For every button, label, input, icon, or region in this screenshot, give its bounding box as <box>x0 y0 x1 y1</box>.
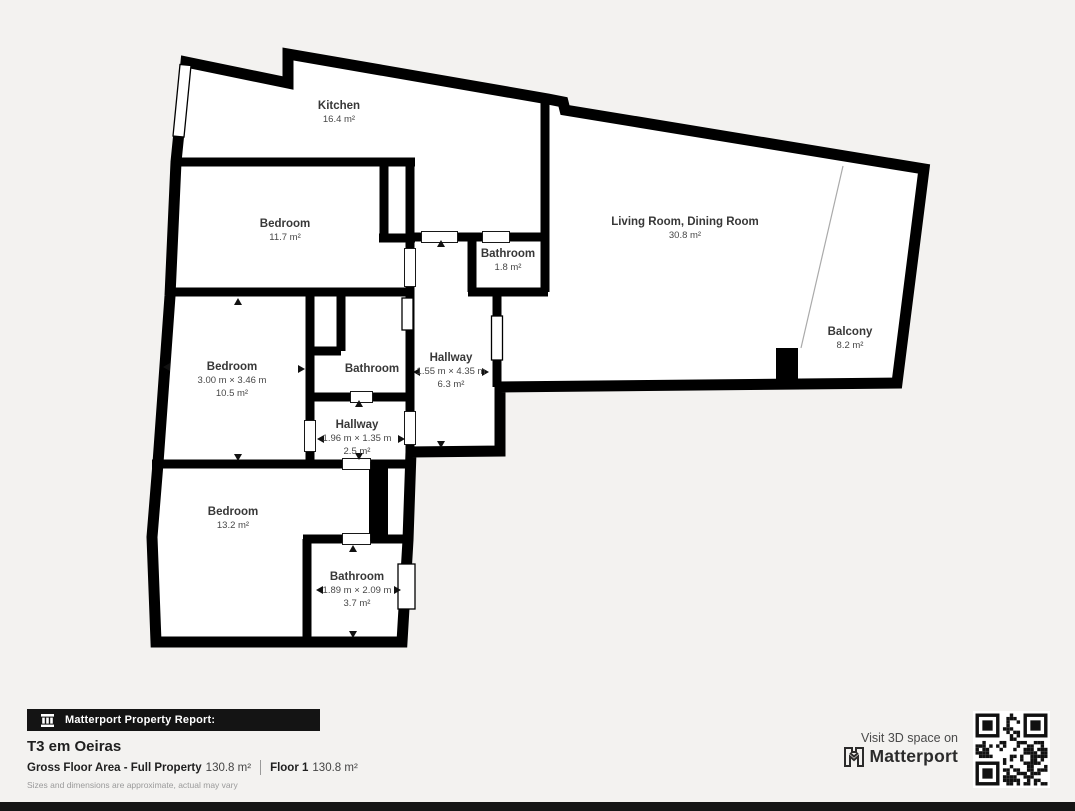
room-label-bathroom-small: Bathroom 1.8 m² <box>481 247 535 274</box>
matterport-wordmark: Matterport <box>869 746 958 767</box>
floor-plan-page: Kitchen 16.4 m² Bedroom 11.7 m² Living R… <box>0 0 1075 811</box>
qr-code <box>973 711 1050 788</box>
floor-value: 130.8 m² <box>312 762 357 774</box>
floor-plan <box>0 0 1075 811</box>
gross-area-label: Gross Floor Area - Full Property <box>27 762 202 774</box>
qr-pattern <box>973 711 1050 788</box>
disclaimer-text: Sizes and dimensions are approximate, ac… <box>27 780 238 790</box>
area-stats: Gross Floor Area - Full Property 130.8 m… <box>27 760 358 775</box>
room-label-hallway-main: Hallway 1.55 m × 4.35 m 6.3 m² <box>417 351 486 391</box>
door-bedroom-middle <box>305 421 316 452</box>
report-header-label: Matterport Property Report: <box>65 714 215 726</box>
matterport-logo-icon <box>844 747 864 767</box>
door-hallway-kitchen <box>422 232 458 243</box>
stats-divider <box>260 760 261 775</box>
gross-area-value: 130.8 m² <box>206 762 251 774</box>
matterport-brand: Matterport <box>844 746 958 767</box>
bottom-bar <box>0 802 1075 811</box>
room-label-balcony: Balcony 8.2 m² <box>828 325 873 352</box>
room-label-kitchen: Kitchen 16.4 m² <box>318 99 360 126</box>
floor-label: Floor 1 <box>270 762 308 774</box>
window-hallway <box>492 316 503 360</box>
room-label-bedroom-middle: Bedroom 3.00 m × 3.46 m 10.5 m² <box>198 360 267 400</box>
door-bathroom-small <box>483 232 510 243</box>
niche-bathroom-bottom <box>398 564 415 609</box>
room-label-bedroom-top: Bedroom 11.7 m² <box>260 217 310 244</box>
property-title: T3 em Oeiras <box>27 738 121 755</box>
door-bedroom-bottom <box>343 459 371 470</box>
floor-outline <box>152 54 924 642</box>
room-label-hallway-small: Hallway 1.96 m × 1.35 m 2.5 m² <box>323 418 392 458</box>
visit-3d-text: Visit 3D space on <box>861 731 958 745</box>
balcony-pillar <box>776 348 798 385</box>
room-label-bathroom-bottom: Bathroom 1.89 m × 2.09 m 3.7 m² <box>323 570 392 610</box>
door-hallway-hallway <box>405 412 416 445</box>
room-label-bedroom-bottom: Bedroom 13.2 m² <box>208 505 258 532</box>
room-label-bathroom-middle: Bathroom <box>345 362 399 376</box>
building-icon <box>40 714 55 727</box>
shaft-wall <box>369 462 388 541</box>
report-header-bar: Matterport Property Report: <box>27 709 320 731</box>
door-bathroom-middle <box>351 392 373 403</box>
door-bathroom-bottom <box>343 534 371 545</box>
room-label-living-room: Living Room, Dining Room 30.8 m² <box>611 215 759 242</box>
door-bedroom-top <box>405 249 416 287</box>
niche-bathroom-middle <box>402 298 413 330</box>
